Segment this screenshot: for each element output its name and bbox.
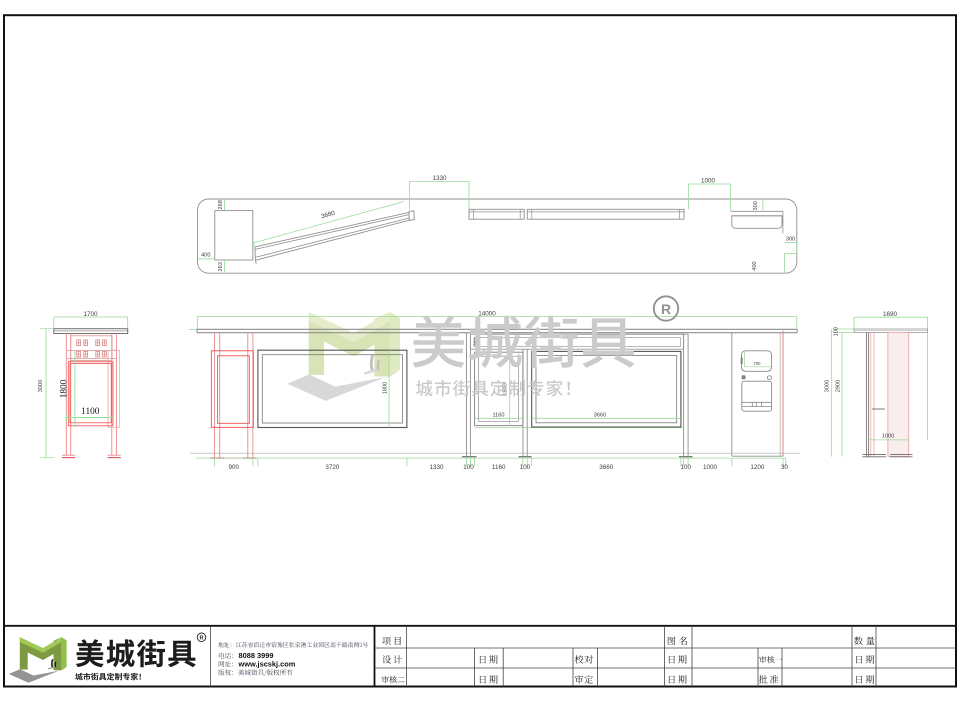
svg-text:3660: 3660 — [599, 464, 614, 471]
svg-text:1800: 1800 — [59, 379, 69, 398]
svg-text:268: 268 — [218, 200, 224, 209]
svg-text:2900: 2900 — [835, 380, 841, 392]
svg-text:R: R — [199, 636, 203, 642]
svg-text:30: 30 — [781, 464, 789, 471]
svg-text:400: 400 — [201, 253, 210, 259]
svg-text:400: 400 — [752, 261, 758, 270]
svg-text:100: 100 — [833, 327, 839, 336]
svg-text:1000: 1000 — [701, 178, 716, 185]
svg-text:www.jscskj.com: www.jscskj.com — [238, 660, 296, 669]
svg-text:700: 700 — [754, 361, 762, 366]
svg-text:300: 300 — [786, 236, 795, 242]
svg-text:1000: 1000 — [703, 464, 718, 471]
svg-text:1100: 1100 — [81, 407, 100, 417]
svg-text:1330: 1330 — [432, 175, 447, 182]
svg-text:1330: 1330 — [429, 464, 444, 471]
svg-text:100: 100 — [681, 464, 692, 471]
svg-text:1000: 1000 — [882, 434, 894, 440]
svg-text:14000: 14000 — [478, 310, 496, 317]
svg-text:1200: 1200 — [750, 464, 765, 471]
svg-text:1800: 1800 — [382, 382, 388, 394]
svg-text:100: 100 — [463, 464, 474, 471]
svg-text:3660: 3660 — [594, 413, 606, 419]
svg-text:263: 263 — [218, 262, 224, 271]
svg-text:900: 900 — [228, 464, 239, 471]
svg-text:100: 100 — [520, 464, 531, 471]
svg-text:3720: 3720 — [325, 464, 340, 471]
svg-text:300: 300 — [753, 201, 759, 210]
svg-text:1700: 1700 — [83, 311, 98, 318]
svg-text:R: R — [661, 301, 671, 317]
svg-text:1690: 1690 — [883, 311, 898, 318]
svg-text:1160: 1160 — [492, 464, 506, 471]
svg-text:300: 300 — [739, 357, 744, 364]
svg-text:3000: 3000 — [824, 380, 830, 392]
svg-text:3000: 3000 — [38, 380, 44, 392]
svg-text:1160: 1160 — [492, 412, 504, 418]
